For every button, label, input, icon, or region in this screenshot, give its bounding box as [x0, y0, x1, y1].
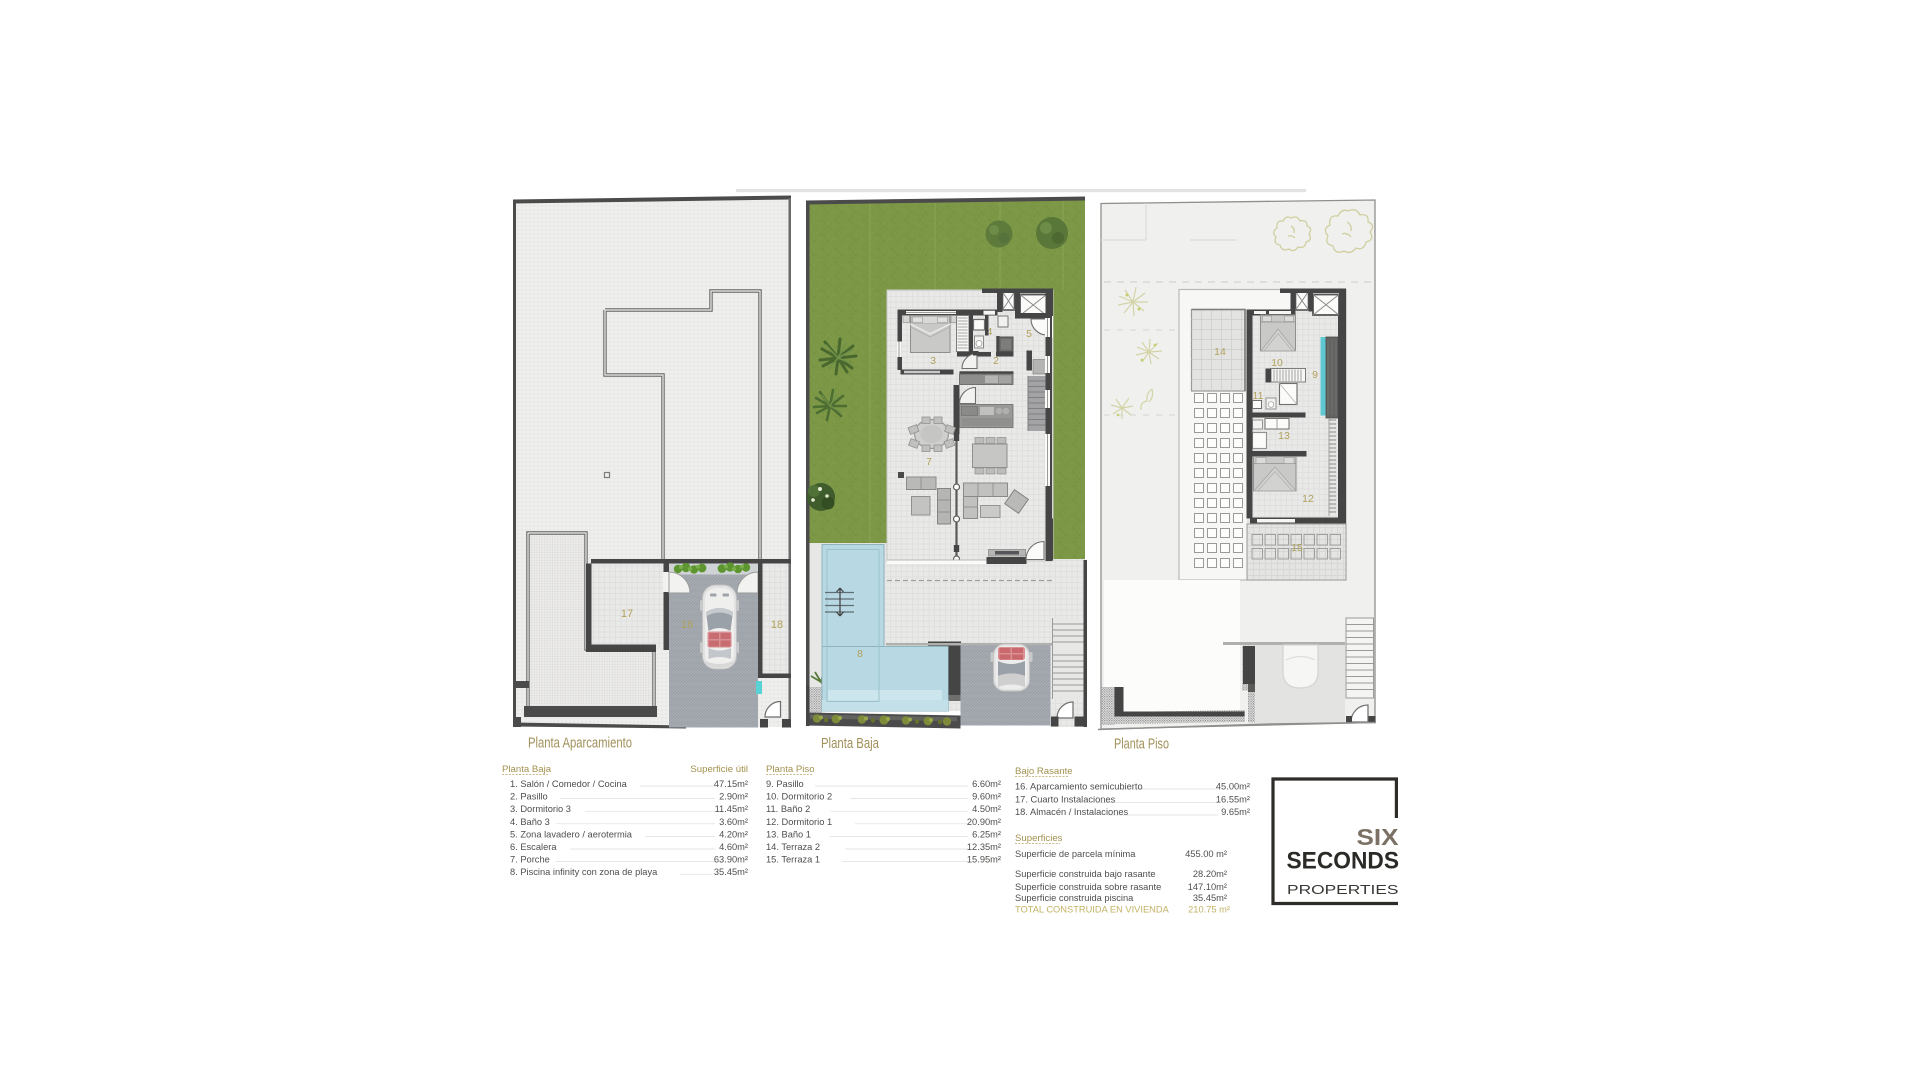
- svg-text:4.60m²: 4.60m²: [719, 842, 748, 852]
- svg-text:3. Dormitorio 3: 3. Dormitorio 3: [510, 804, 571, 814]
- svg-text:455.00 m²: 455.00 m²: [1185, 849, 1227, 859]
- svg-text:17: 17: [621, 608, 633, 620]
- svg-text:14. Terraza 2: 14. Terraza 2: [766, 842, 820, 852]
- svg-text:Planta Aparcamiento: Planta Aparcamiento: [528, 735, 632, 752]
- svg-text:6.25m²: 6.25m²: [972, 829, 1001, 839]
- svg-text:12: 12: [1302, 493, 1314, 505]
- svg-text:9: 9: [1312, 369, 1318, 381]
- svg-text:147.10m²: 147.10m²: [1188, 882, 1227, 892]
- svg-text:16. Aparcamiento semicubierto: 16. Aparcamiento semicubierto: [1015, 782, 1143, 792]
- svg-text:6.60m²: 6.60m²: [972, 779, 1001, 789]
- svg-text:Planta Piso: Planta Piso: [766, 764, 815, 775]
- svg-text:Planta Baja: Planta Baja: [821, 735, 879, 752]
- svg-text:5. Zona lavadero / aerotermia: 5. Zona lavadero / aerotermia: [510, 829, 633, 839]
- svg-text:15. Terraza 1: 15. Terraza 1: [766, 855, 820, 865]
- svg-text:1. Salón / Comedor / Cocina: 1. Salón / Comedor / Cocina: [510, 779, 628, 789]
- svg-text:45.00m²: 45.00m²: [1216, 782, 1250, 792]
- svg-text:20.90m²: 20.90m²: [967, 817, 1001, 827]
- svg-text:Superficie de parcela mínima: Superficie de parcela mínima: [1015, 849, 1136, 859]
- svg-text:Superficie construida bajo ras: Superficie construida bajo rasante: [1015, 869, 1156, 879]
- svg-text:2.90m²: 2.90m²: [719, 792, 748, 802]
- svg-text:13. Baño 1: 13. Baño 1: [766, 829, 811, 839]
- svg-text:7: 7: [926, 456, 932, 468]
- svg-text:18: 18: [771, 619, 783, 631]
- svg-text:PROPERTIES: PROPERTIES: [1287, 883, 1399, 897]
- svg-text:9.60m²: 9.60m²: [972, 792, 1001, 802]
- svg-text:3: 3: [930, 355, 936, 367]
- svg-text:11.45m²: 11.45m²: [715, 804, 748, 814]
- svg-text:2: 2: [993, 355, 999, 367]
- svg-text:13: 13: [1278, 430, 1290, 442]
- svg-text:12.35m²: 12.35m²: [967, 842, 1001, 852]
- svg-text:17. Cuarto Instalaciones: 17. Cuarto Instalaciones: [1015, 795, 1116, 805]
- svg-text:Planta Baja: Planta Baja: [502, 764, 552, 775]
- svg-text:4.50m²: 4.50m²: [972, 804, 1001, 814]
- svg-text:35.45m²: 35.45m²: [1193, 893, 1227, 903]
- svg-text:Superficies: Superficies: [1015, 833, 1063, 844]
- svg-text:5: 5: [1026, 328, 1032, 340]
- svg-text:Planta Piso: Planta Piso: [1114, 736, 1169, 753]
- svg-text:18. Almacén / Instalaciones: 18. Almacén / Instalaciones: [1015, 807, 1129, 817]
- svg-text:SIX: SIX: [1357, 824, 1400, 850]
- svg-text:2. Pasillo: 2. Pasillo: [510, 792, 548, 802]
- svg-text:47.15m²: 47.15m²: [714, 779, 748, 789]
- svg-text:TOTAL CONSTRUIDA EN VIVIENDA: TOTAL CONSTRUIDA EN VIVIENDA: [1015, 905, 1170, 915]
- svg-text:15: 15: [1291, 542, 1303, 554]
- svg-text:8: 8: [857, 648, 863, 660]
- svg-text:14: 14: [1214, 346, 1226, 358]
- svg-text:9.65m²: 9.65m²: [1221, 807, 1250, 817]
- svg-text:3.60m²: 3.60m²: [719, 817, 748, 827]
- svg-text:SECONDS: SECONDS: [1287, 848, 1400, 875]
- svg-text:4.20m²: 4.20m²: [719, 829, 748, 839]
- svg-text:7. Porche: 7. Porche: [510, 855, 550, 865]
- svg-text:9. Pasillo: 9. Pasillo: [766, 779, 804, 789]
- svg-text:Bajo Rasante: Bajo Rasante: [1015, 766, 1073, 777]
- svg-text:11. Baño 2: 11. Baño 2: [766, 804, 810, 814]
- svg-text:8. Piscina infinity con zona d: 8. Piscina infinity con zona de playa: [510, 867, 658, 877]
- svg-text:4. Baño 3: 4. Baño 3: [510, 817, 550, 827]
- svg-text:6. Escalera: 6. Escalera: [510, 842, 557, 852]
- svg-text:Superficie construida piscina: Superficie construida piscina: [1015, 893, 1134, 903]
- svg-text:16.55m²: 16.55m²: [1216, 795, 1250, 805]
- svg-text:12. Dormitorio 1: 12. Dormitorio 1: [766, 817, 832, 827]
- svg-text:210.75 m²: 210.75 m²: [1188, 905, 1230, 915]
- svg-text:15.95m²: 15.95m²: [967, 855, 1001, 865]
- svg-text:10: 10: [1271, 357, 1283, 369]
- svg-text:10. Dormitorio 2: 10. Dormitorio 2: [766, 792, 832, 802]
- svg-text:Superficie construida sobre ra: Superficie construida sobre rasante: [1015, 882, 1161, 892]
- svg-text:63.90m²: 63.90m²: [714, 855, 748, 865]
- svg-text:28.20m²: 28.20m²: [1193, 869, 1227, 879]
- svg-text:16: 16: [681, 619, 693, 631]
- svg-text:Superficie útil: Superficie útil: [690, 764, 748, 775]
- svg-text:35.45m²: 35.45m²: [714, 867, 748, 877]
